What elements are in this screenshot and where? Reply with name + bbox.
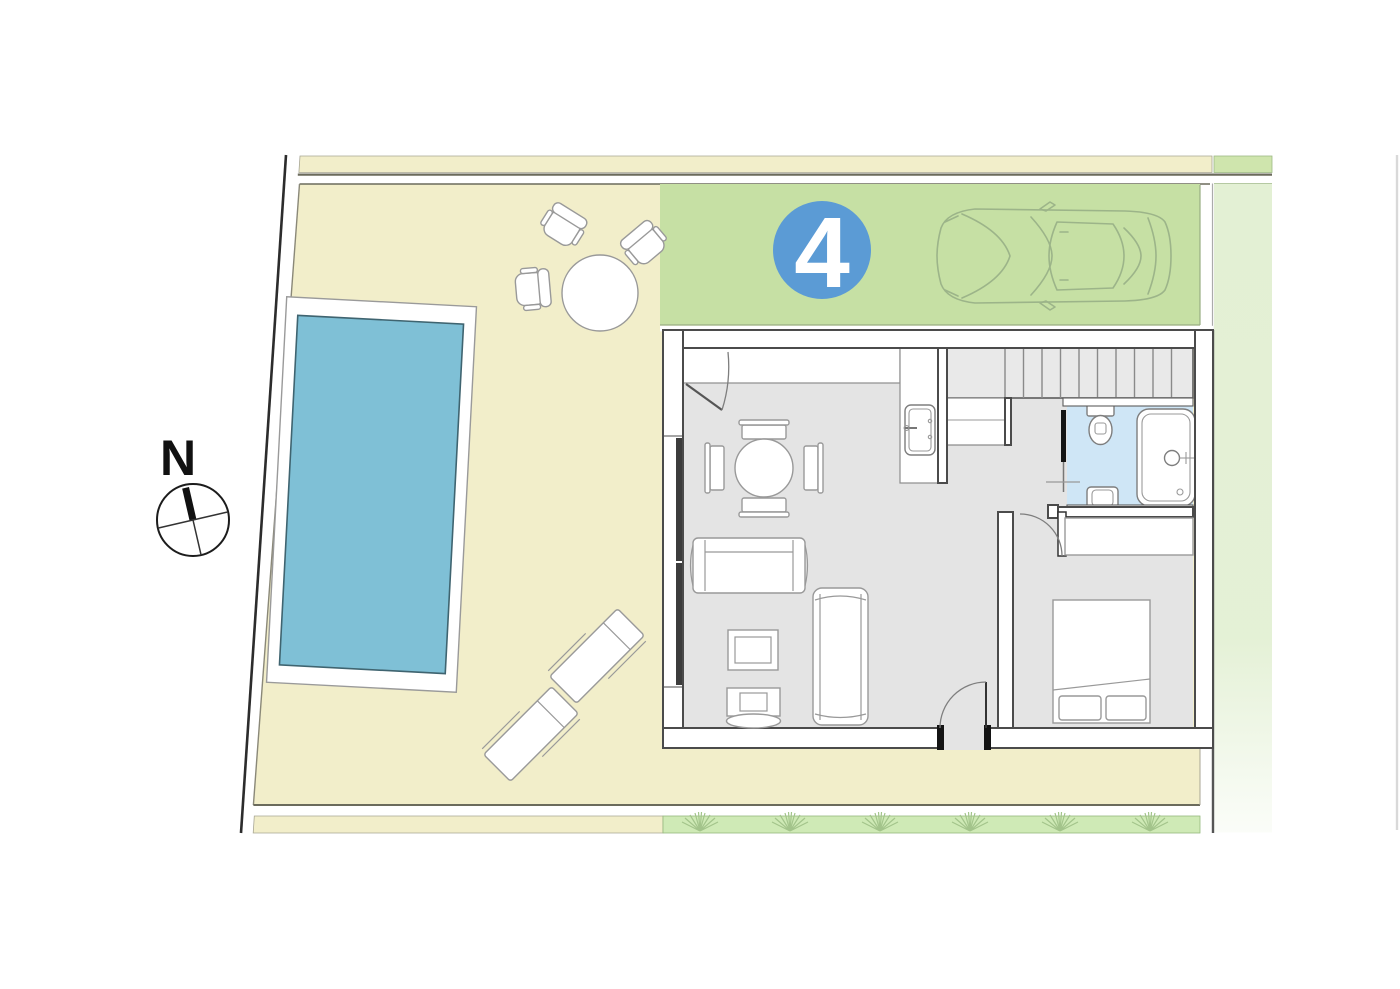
bottom-hedge-strip xyxy=(253,812,1200,833)
dining-chair xyxy=(739,420,789,439)
house-floorplan xyxy=(663,330,1213,750)
bathroom-north-wall xyxy=(1063,398,1193,406)
right-lawn-strip xyxy=(1213,184,1273,834)
coffee-table xyxy=(728,630,778,670)
east-wall xyxy=(1195,330,1213,748)
dining-table xyxy=(735,439,793,497)
grass-strip xyxy=(663,816,1200,833)
south-wall-left xyxy=(663,728,938,748)
north-compass: N xyxy=(150,430,236,563)
pool-water xyxy=(279,315,463,673)
bathtub-icon xyxy=(1137,409,1195,506)
chaise-longue xyxy=(813,588,868,725)
bedroom-door-stub xyxy=(1048,505,1058,518)
north-label: N xyxy=(160,430,196,486)
kitchen-sink-icon xyxy=(904,405,935,455)
sofa xyxy=(691,538,808,593)
top-strip-green-segment xyxy=(1214,156,1272,173)
dining-chair xyxy=(804,443,823,493)
bedroom-west-wall xyxy=(998,512,1013,728)
dining-chair xyxy=(705,443,724,493)
site-plan-drawing: 4 N xyxy=(0,0,1400,989)
staircase xyxy=(947,348,1193,398)
entrance-threshold xyxy=(944,725,984,750)
swimming-pool xyxy=(267,297,477,692)
outdoor-table xyxy=(562,255,638,331)
kitchen-stair-wall xyxy=(938,348,947,483)
site-plan-page: 4 N xyxy=(0,0,1400,989)
closet xyxy=(1065,518,1193,555)
bedroom-north-wall xyxy=(1056,507,1193,517)
double-bed xyxy=(1053,600,1150,723)
dining-chair xyxy=(739,498,789,517)
unit-number-label: 4 xyxy=(794,197,850,309)
understair-wall-stub xyxy=(1005,398,1011,445)
top-sidewalk-strip xyxy=(298,156,1272,175)
parking-area xyxy=(660,184,1200,325)
north-wall xyxy=(663,330,1213,348)
south-wall-right xyxy=(990,728,1213,748)
tv-unit xyxy=(727,688,781,728)
understair-closet xyxy=(947,398,1005,445)
